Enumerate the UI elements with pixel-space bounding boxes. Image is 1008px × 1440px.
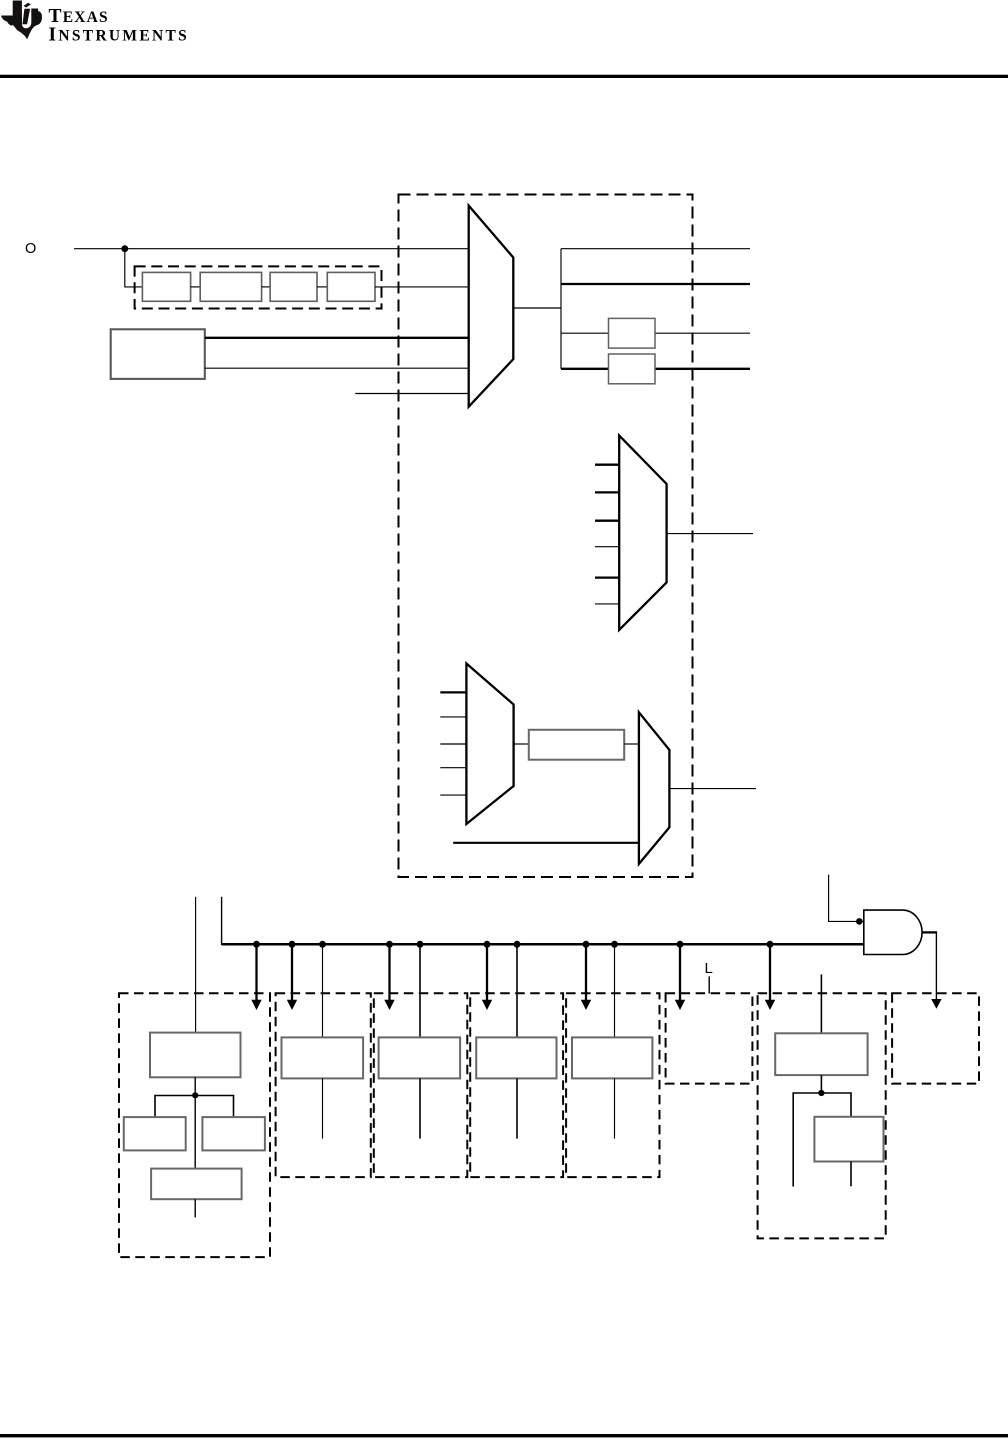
- svg-text:O: O: [25, 241, 36, 257]
- svg-text:L: L: [705, 960, 713, 977]
- svg-text:TEXAS: TEXAS: [49, 6, 109, 27]
- svg-text:INSTRUMENTS: INSTRUMENTS: [49, 25, 190, 46]
